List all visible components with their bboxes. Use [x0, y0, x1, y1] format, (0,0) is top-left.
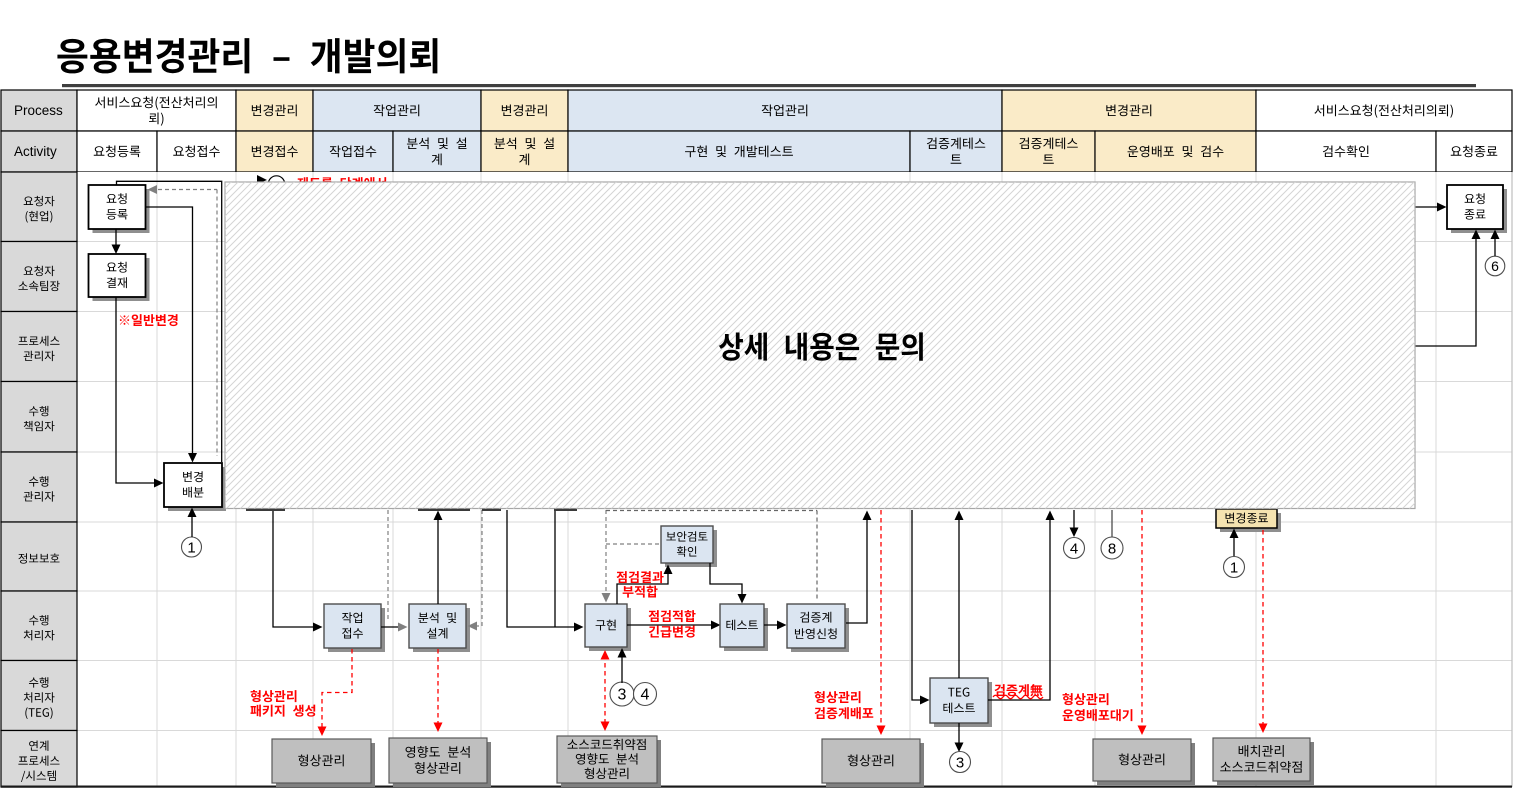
svg-text:1: 1	[187, 539, 195, 556]
svg-text:3: 3	[618, 687, 627, 704]
svg-text:6: 6	[1491, 258, 1499, 274]
svg-text:8: 8	[1108, 540, 1116, 557]
svg-text:4: 4	[1070, 540, 1078, 557]
svg-text:3: 3	[956, 754, 964, 771]
svg-text:1: 1	[1230, 559, 1238, 576]
svg-text:Process: Process	[14, 103, 63, 118]
svg-text:4: 4	[641, 687, 650, 704]
svg-text:Activity: Activity	[14, 144, 57, 159]
